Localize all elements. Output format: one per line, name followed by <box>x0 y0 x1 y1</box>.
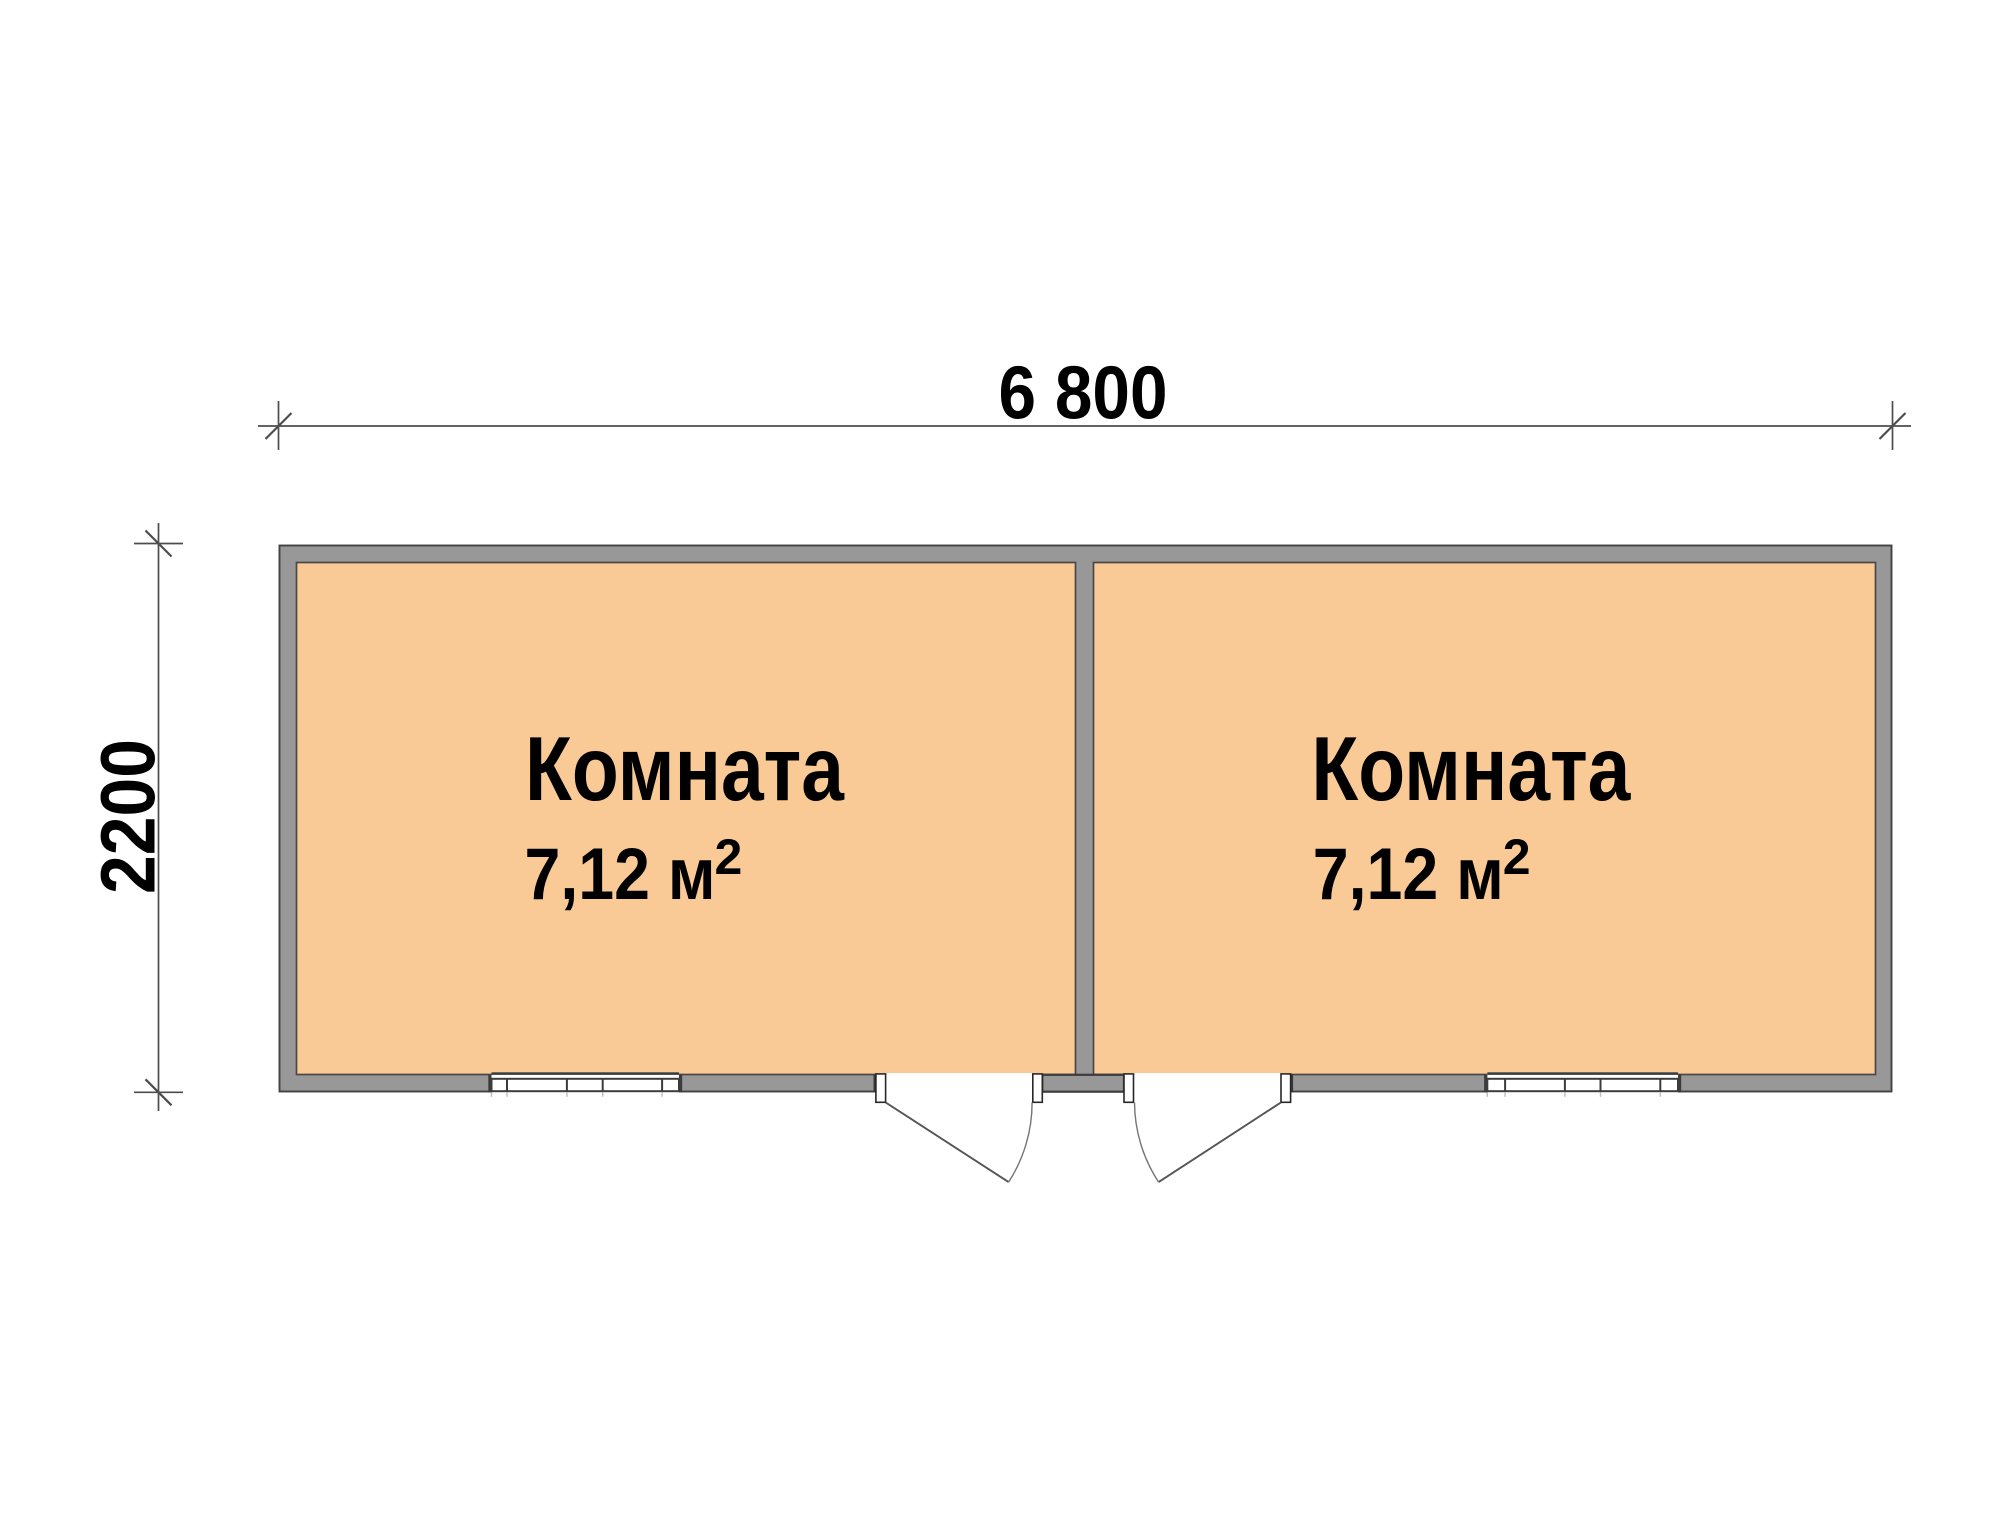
svg-text:7,12 м: 7,12 м <box>525 834 716 915</box>
svg-text:6 800: 6 800 <box>999 351 1168 435</box>
svg-text:2: 2 <box>715 829 743 885</box>
svg-text:2: 2 <box>1503 829 1531 885</box>
svg-text:Комната: Комната <box>525 719 845 820</box>
svg-text:Комната: Комната <box>1311 719 1631 820</box>
svg-text:2200: 2200 <box>86 739 172 894</box>
svg-text:7,12 м: 7,12 м <box>1313 834 1504 915</box>
